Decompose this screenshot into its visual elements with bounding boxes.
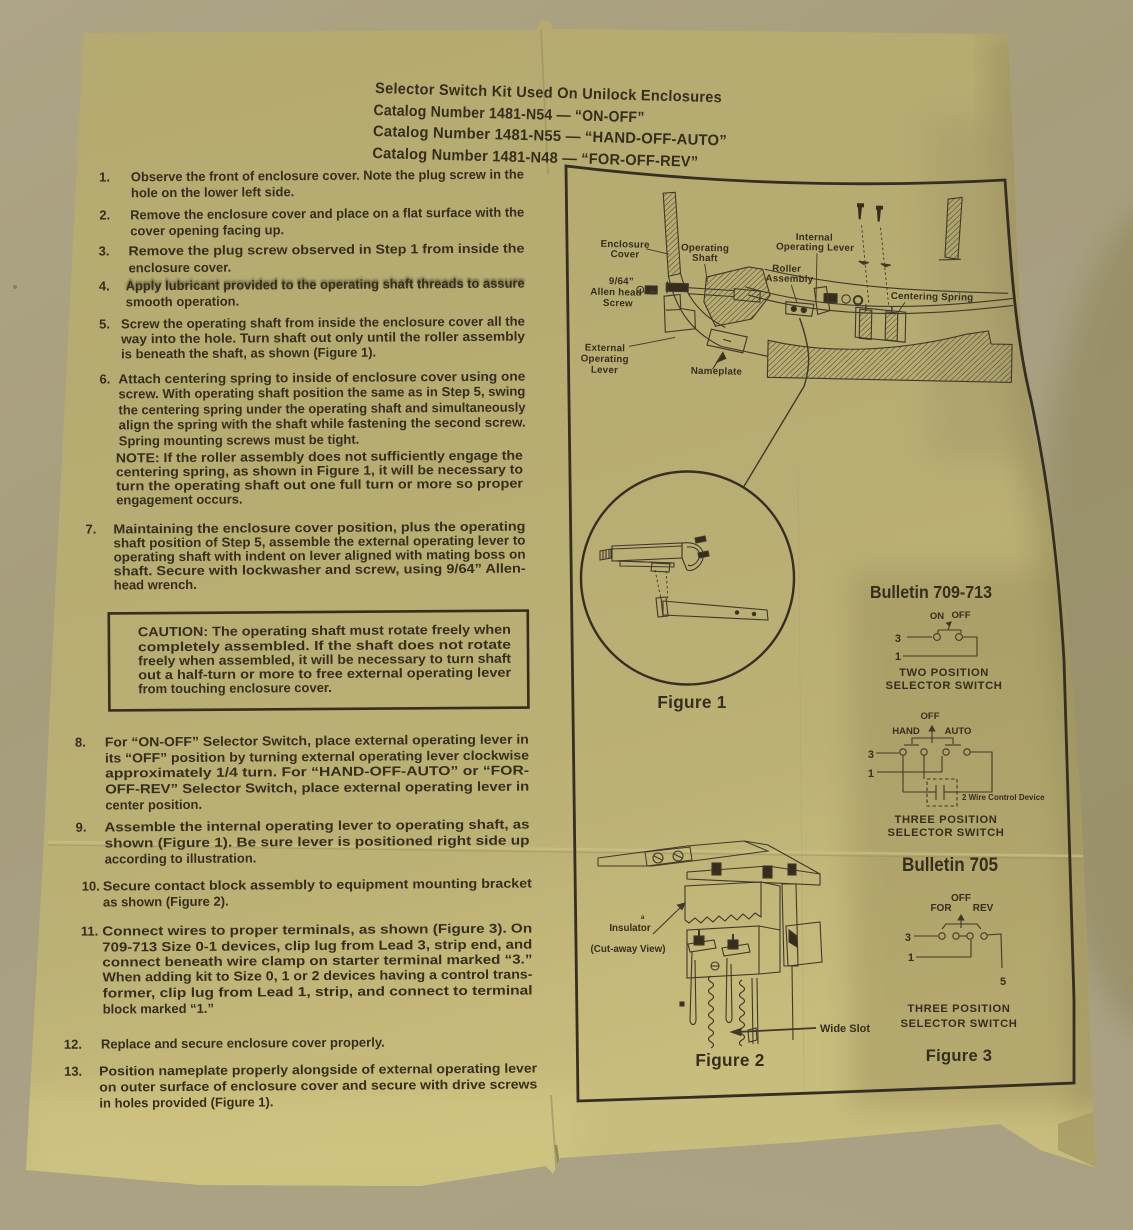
svg-text:Lever: Lever <box>591 365 618 377</box>
svg-text:Figure 1: Figure 1 <box>657 692 726 712</box>
svg-text:11.: 11. <box>81 924 98 939</box>
svg-text:SELECTOR SWITCH: SELECTOR SWITCH <box>888 827 1005 839</box>
svg-text:way into the hole. Turn shaft: way into the hole. Turn shaft out only u… <box>120 329 526 347</box>
svg-text:according to illustration.: according to illustration. <box>105 850 257 866</box>
svg-text:Remove the enclosure cover and: Remove the enclosure cover and place on … <box>130 205 524 223</box>
svg-text:1: 1 <box>908 952 914 964</box>
svg-text:TWO POSITION: TWO POSITION <box>899 667 989 679</box>
svg-text:THREE POSITION: THREE POSITION <box>895 814 998 826</box>
svg-text:Bulletin 709-713: Bulletin 709-713 <box>870 582 992 602</box>
svg-text:SELECTOR SWITCH: SELECTOR SWITCH <box>886 680 1003 692</box>
svg-text:Secure contact block assembly: Secure contact block assembly to equipme… <box>103 876 533 894</box>
svg-text:9.: 9. <box>76 820 87 835</box>
svg-text:3: 3 <box>895 633 901 645</box>
svg-text:smooth operation.: smooth operation. <box>126 294 239 310</box>
svg-text:7.: 7. <box>85 522 96 537</box>
svg-text:enclosure cover.: enclosure cover. <box>128 260 231 276</box>
svg-text:head wrench.: head wrench. <box>114 577 197 593</box>
svg-text:1: 1 <box>895 651 901 663</box>
svg-text:OFF: OFF <box>921 711 940 722</box>
svg-text:SELECTOR SWITCH: SELECTOR SWITCH <box>901 1018 1018 1030</box>
svg-text:2.: 2. <box>99 207 110 222</box>
svg-text:5.: 5. <box>99 316 110 331</box>
svg-text:Figure 2: Figure 2 <box>695 1050 764 1070</box>
svg-text:in holes provided (Figure 1).: in holes provided (Figure 1). <box>99 1094 273 1110</box>
svg-text:Assembly: Assembly <box>765 273 813 285</box>
svg-text:8.: 8. <box>75 735 86 750</box>
svg-text:Spring mounting screws must be: Spring mounting screws must be tight. <box>119 432 360 449</box>
svg-text:ᵃ: ᵃ <box>641 913 645 923</box>
svg-text:Insulator: Insulator <box>609 923 651 934</box>
svg-text:Screw: Screw <box>603 298 633 310</box>
svg-text:REV: REV <box>973 903 994 914</box>
svg-text:Bulletin 705: Bulletin 705 <box>902 855 998 876</box>
svg-text:4.: 4. <box>99 278 110 293</box>
svg-text:(Cut-away View): (Cut-away View) <box>591 944 666 955</box>
svg-text:2 Wire Control Device: 2 Wire Control Device <box>962 793 1045 802</box>
svg-text:HAND: HAND <box>892 726 920 737</box>
svg-text:Assemble the internal operatin: Assemble the internal operating lever to… <box>104 817 529 835</box>
svg-text:Apply lubricant provided to th: Apply lubricant provided to the operatin… <box>126 274 525 292</box>
svg-text:as shown (Figure 2).: as shown (Figure 2). <box>103 894 229 910</box>
svg-text:AUTO: AUTO <box>945 726 972 737</box>
svg-text:Replace and secure enclosure c: Replace and secure enclosure cover prope… <box>101 1035 385 1052</box>
svg-text:Nameplate: Nameplate <box>691 366 743 378</box>
svg-text:block marked “1.”: block marked “1.” <box>103 1001 214 1017</box>
svg-text:Shaft: Shaft <box>692 253 718 265</box>
svg-text:Operating: Operating <box>581 353 629 365</box>
svg-text:10.: 10. <box>82 879 100 894</box>
svg-text:hole on the lower left side.: hole on the lower left side. <box>131 184 294 200</box>
svg-text:Position nameplate properly al: Position nameplate properly alongside of… <box>99 1060 537 1078</box>
svg-text:Wide Slot: Wide Slot <box>820 1023 870 1035</box>
svg-text:1.: 1. <box>99 169 110 184</box>
svg-text:is beneath the shaft, as shown: is beneath the shaft, as shown (Figure 1… <box>121 345 376 362</box>
svg-text:Observe the front of enclosure: Observe the front of enclosure cover. No… <box>131 167 524 185</box>
svg-text:center position.: center position. <box>105 797 202 813</box>
svg-text:External: External <box>585 343 626 355</box>
svg-text:Allen head: Allen head <box>590 287 642 299</box>
svg-text:align the spring with the shaf: align the spring with the shaft while fa… <box>119 415 526 433</box>
svg-text:THREE POSITION: THREE POSITION <box>908 1003 1011 1015</box>
svg-text:OFF: OFF <box>952 610 971 621</box>
svg-text:When adding kit to Size 0, 1 o: When adding kit to Size 0, 1 or 2 device… <box>102 967 532 985</box>
svg-text:approximately 1/4 turn. For: approximately 1/4 turn. For “HAND-OFF-AU… <box>105 763 529 781</box>
svg-text:13.: 13. <box>64 1064 82 1079</box>
svg-text:former, clip lug from Lead 1,: former, clip lug from Lead 1, strip, and… <box>103 983 533 1001</box>
svg-text:engagement occurs.: engagement occurs. <box>116 492 243 508</box>
svg-text:screw. With operating shaft p: screw. With operating shaft position the… <box>118 384 525 402</box>
svg-text:6.: 6. <box>99 371 110 386</box>
svg-text:Operating Lever: Operating Lever <box>776 241 854 254</box>
svg-text:shown (Figure 1). Be sure le: shown (Figure 1). Be sure lever is posit… <box>104 833 529 851</box>
svg-text:shaft. Secure with lockwashe: shaft. Secure with lockwasher and screw,… <box>114 561 526 579</box>
svg-text:9/64”: 9/64” <box>609 276 634 288</box>
svg-text:3: 3 <box>905 932 911 944</box>
svg-text:Cover: Cover <box>610 249 639 261</box>
svg-text:3: 3 <box>868 749 874 761</box>
svg-text:For “ON-OFF” Selector Switch,: For “ON-OFF” Selector Switch, place exte… <box>105 732 529 750</box>
svg-text:Remove the plug screw observed: Remove the plug screw observed in Step 1… <box>128 241 524 259</box>
svg-text:Connect wires to proper termin: Connect wires to proper terminals, as sh… <box>102 921 532 939</box>
svg-text:OFF: OFF <box>951 893 971 904</box>
svg-text:3.: 3. <box>99 243 110 258</box>
svg-text:turn the operating shaft out o: turn the operating shaft out one full tu… <box>116 476 523 494</box>
svg-text:Centering Spring: Centering Spring <box>891 291 974 304</box>
svg-text:on outer surface of enclosure: on outer surface of enclosure cover and … <box>99 1076 537 1094</box>
svg-text:Figure 3: Figure 3 <box>926 1047 993 1065</box>
svg-text:ON: ON <box>930 611 944 622</box>
svg-text:FOR: FOR <box>930 903 952 914</box>
svg-text:cover opening facing up.: cover opening facing up. <box>130 222 284 238</box>
svg-text:5: 5 <box>1000 976 1006 988</box>
svg-text:from touching enclosure cover.: from touching enclosure cover. <box>138 680 332 696</box>
svg-text:1: 1 <box>868 768 874 780</box>
svg-text:12.: 12. <box>64 1037 82 1052</box>
svg-text:OFF-REV” Selector Switch, plac: OFF-REV” Selector Switch, place external… <box>105 779 529 797</box>
